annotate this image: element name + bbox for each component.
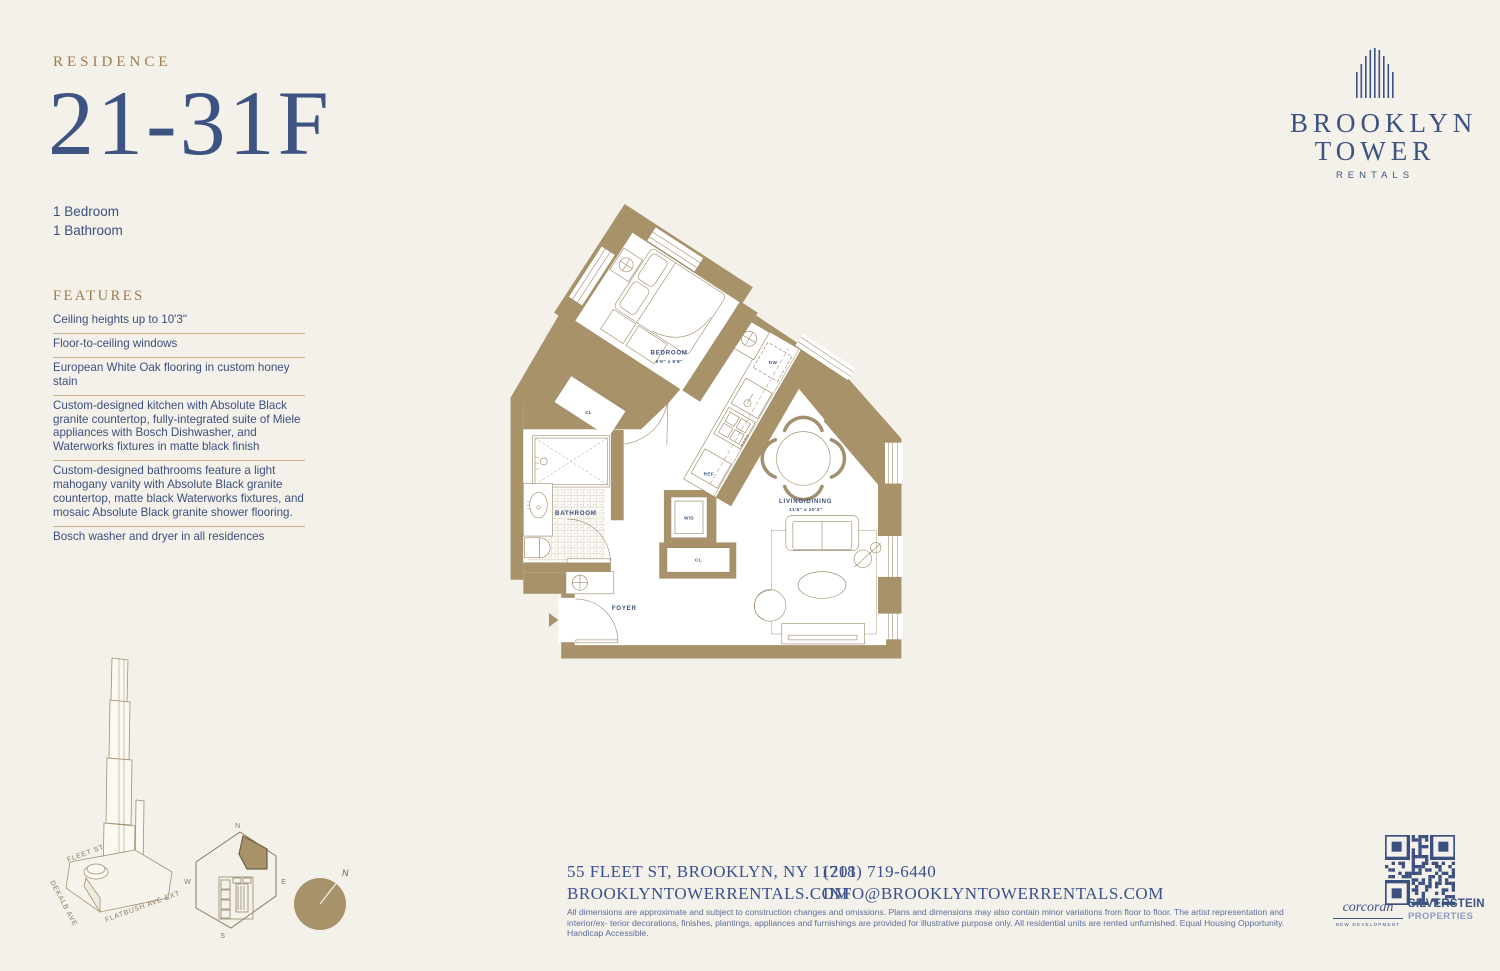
site-key: N E S W bbox=[183, 822, 293, 940]
feature-item: Custom-designed kitchen with Absolute Bl… bbox=[53, 395, 305, 461]
feature-item: Floor-to-ceiling windows bbox=[53, 333, 305, 357]
bathroom bbox=[523, 430, 611, 563]
residence-label: RESIDENCE bbox=[53, 54, 172, 71]
tower-bars-icon bbox=[1290, 42, 1460, 104]
bathroom-count: 1 Bathroom bbox=[53, 223, 123, 238]
silverstein-name: SILVERSTEIN bbox=[1408, 899, 1468, 911]
sitekey-w: W bbox=[184, 879, 191, 886]
wd-label: W/D bbox=[684, 516, 694, 521]
sofa bbox=[786, 516, 859, 551]
feature-item: Bosch washer and dryer in all residences bbox=[53, 526, 305, 550]
features-list: Ceiling heights up to 10'3"Floor-to-ceil… bbox=[53, 310, 305, 550]
building-illustration: FLEET ST DEKALB AVE FLATBUSH AVE EXT bbox=[40, 650, 190, 930]
unit-location bbox=[239, 836, 267, 869]
closet2-label: CL bbox=[695, 558, 702, 563]
armchair bbox=[754, 590, 786, 622]
living-dims: 11'6" x 20'3" bbox=[789, 507, 823, 513]
foyer-label: FOYER bbox=[612, 605, 637, 612]
bedroom-label: BEDROOM bbox=[651, 350, 688, 357]
entry-arrow-icon bbox=[549, 613, 558, 627]
sitekey-e: E bbox=[281, 879, 286, 886]
bathroom-label: BATHROOM bbox=[555, 510, 597, 517]
sitekey-s: S bbox=[220, 933, 225, 940]
phone: (718) 719-6440 bbox=[823, 862, 936, 882]
unit-number: 21-31F bbox=[48, 70, 332, 176]
bedroom-dims: 9'6" x 9'8" bbox=[655, 359, 683, 365]
living-label: LIVING/DINING bbox=[779, 498, 832, 505]
floor-plan: BEDROOM 9'6" x 9'8" LIVING/DINING 11'6" … bbox=[500, 55, 1200, 845]
compass: N bbox=[288, 864, 360, 936]
closet1-label: CL bbox=[585, 410, 592, 415]
features-title: FEATURES bbox=[53, 288, 145, 305]
bedroom-count: 1 Bedroom bbox=[53, 204, 119, 219]
disclaimer-line2: terior decorations, finishes, plantings,… bbox=[567, 918, 1284, 939]
tv-console bbox=[782, 624, 865, 644]
entry-opening bbox=[558, 598, 576, 642]
toilet bbox=[525, 538, 551, 558]
dw-label: DW bbox=[769, 360, 778, 365]
feature-item: European White Oak flooring in custom ho… bbox=[53, 357, 305, 395]
brand-sub: RENTALS bbox=[1290, 170, 1460, 181]
vanity-sink bbox=[523, 484, 552, 536]
feature-item: Custom-designed bathrooms feature a ligh… bbox=[53, 460, 305, 526]
corcoran-logo: corcoran NEW DEVELOPMENT bbox=[1333, 900, 1403, 927]
brand-logo: BROOKLYN TOWER RENTALS bbox=[1290, 42, 1460, 181]
sitekey-n: N bbox=[235, 823, 241, 830]
feature-item: Ceiling heights up to 10'3" bbox=[53, 310, 305, 333]
address: 55 FLEET ST, BROOKLYN, NY 11201 bbox=[567, 862, 857, 882]
email: INFO@BROOKLYNTOWERRENTALS.COM bbox=[823, 884, 1164, 904]
corcoran-name: corcoran bbox=[1333, 900, 1403, 919]
compass-n: N bbox=[342, 868, 349, 878]
flyer-page: RESIDENCE 21-31F 1 Bedroom 1 Bathroom FE… bbox=[0, 0, 1500, 971]
silverstein-logo: SILVERSTEIN PROPERTIES bbox=[1408, 899, 1468, 921]
silverstein-sub: PROPERTIES bbox=[1408, 912, 1468, 922]
disclaimer: All dimensions are approximate and subje… bbox=[567, 907, 1317, 939]
brand-line1: BROOKLYN bbox=[1290, 109, 1460, 137]
shower bbox=[533, 436, 610, 487]
qr-code bbox=[1385, 835, 1455, 905]
website: BROOKLYNTOWERRENTALS.COM bbox=[567, 884, 850, 904]
ref-label: REF bbox=[704, 471, 714, 476]
corcoran-sub: NEW DEVELOPMENT bbox=[1333, 922, 1403, 927]
brand-line2: TOWER bbox=[1290, 137, 1460, 165]
